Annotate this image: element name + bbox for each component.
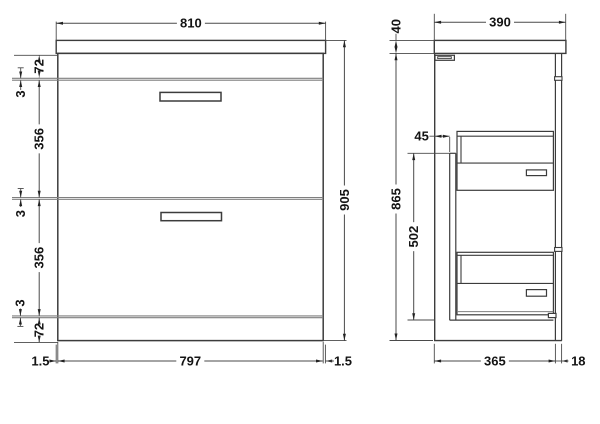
svg-text:797: 797 [179, 354, 201, 369]
svg-text:72: 72 [32, 59, 47, 73]
svg-text:3: 3 [13, 299, 28, 306]
svg-text:810: 810 [180, 16, 202, 31]
svg-text:365: 365 [484, 354, 506, 369]
svg-text:356: 356 [32, 128, 47, 150]
svg-text:905: 905 [337, 189, 352, 211]
svg-text:72: 72 [32, 323, 47, 337]
svg-text:3: 3 [13, 210, 28, 217]
svg-text:390: 390 [489, 15, 511, 30]
svg-text:3: 3 [13, 90, 28, 97]
svg-text:18: 18 [571, 354, 585, 369]
svg-text:45: 45 [414, 129, 428, 144]
svg-text:356: 356 [32, 247, 47, 269]
svg-text:40: 40 [388, 19, 403, 33]
svg-text:502: 502 [406, 226, 421, 248]
svg-text:1.5: 1.5 [334, 354, 352, 369]
svg-text:1.5: 1.5 [31, 354, 49, 369]
svg-text:865: 865 [389, 188, 404, 210]
